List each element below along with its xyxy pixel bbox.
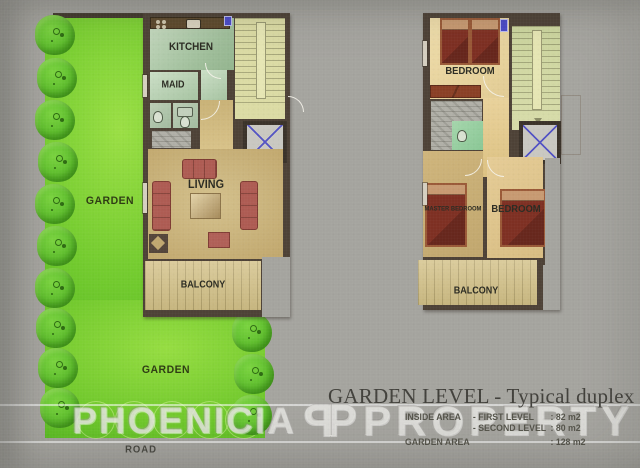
garden-label-lower: GARDEN	[142, 364, 190, 376]
area-level: - SECOND LEVEL	[473, 423, 551, 434]
watermark-word: PHOENICIA	[72, 400, 296, 442]
area-level: - FIRST LEVEL	[473, 412, 551, 423]
adjacent-unit-outline	[561, 95, 581, 155]
garden-label-upper: GARDEN	[86, 195, 134, 207]
door-arc-icon	[288, 96, 304, 112]
stove-icon	[156, 20, 160, 24]
balcony-label: BALCONY	[181, 280, 226, 291]
vent-icon	[224, 16, 232, 26]
bathroom-1	[150, 103, 171, 128]
sofa-icon	[240, 181, 258, 230]
area-row: GARDEN AREA : 128 m2	[405, 437, 630, 448]
first-level-plan: KITCHEN MAID LIVING BALCONY	[143, 13, 290, 317]
balcony-second	[418, 260, 537, 305]
tree-icon	[37, 58, 77, 98]
bathroom	[452, 121, 483, 150]
vent-icon	[500, 19, 508, 32]
area-value: : 80 m2	[551, 423, 631, 434]
road-label: ROAD	[125, 445, 157, 456]
tree-icon	[38, 348, 78, 388]
area-label: INSIDE AREA	[405, 412, 473, 423]
tree-icon	[35, 268, 75, 308]
plan-cutout	[543, 265, 560, 310]
second-level-plan: BEDROOM MASTER BEDROOM BEDROOM BALCONY	[423, 13, 560, 310]
boundary-wall	[53, 13, 150, 18]
area-value: : 128 m2	[551, 437, 631, 448]
tree-icon	[234, 354, 274, 394]
kitchen-counter	[150, 17, 230, 29]
toilet-icon	[153, 111, 163, 123]
bedroom-label: BEDROOM	[491, 203, 540, 215]
tree-icon	[232, 312, 272, 352]
area-label: GARDEN AREA	[405, 437, 473, 448]
toilet-icon	[180, 116, 190, 128]
sink-icon	[186, 19, 201, 29]
bathroom-2	[173, 103, 198, 128]
toilet-icon	[457, 130, 467, 142]
kitchen-label: KITCHEN	[169, 41, 213, 53]
staircase	[512, 26, 560, 130]
balcony-label: BALCONY	[454, 286, 499, 297]
tree-icon	[35, 184, 75, 224]
area-label	[405, 423, 473, 434]
floor-plan-sheet: GARDEN GARDEN ROAD	[0, 0, 640, 468]
tree-icon	[35, 15, 75, 55]
area-row: - SECOND LEVEL : 80 m2	[405, 423, 630, 434]
tree-icon	[38, 142, 78, 182]
sofa-icon	[152, 181, 171, 231]
maid-label: MAID	[161, 80, 184, 91]
sofa-icon	[182, 159, 217, 179]
living-room	[148, 149, 283, 259]
bed-icon	[470, 18, 500, 65]
page-title: GARDEN LEVEL - Typical duplex	[328, 384, 640, 409]
window	[143, 183, 147, 213]
side-table-icon	[208, 232, 230, 248]
fireplace-icon	[149, 234, 168, 253]
window	[143, 75, 147, 97]
tree-icon	[37, 226, 77, 266]
window	[423, 183, 427, 205]
bed-icon	[440, 18, 470, 65]
tree-icon	[35, 100, 75, 140]
coffee-table-icon	[190, 193, 221, 219]
dresser-icon	[430, 85, 481, 98]
tree-icon	[36, 308, 76, 348]
area-value: : 82 m2	[551, 412, 631, 423]
stair-stringer	[256, 22, 266, 99]
master-bedroom-label: MASTER BEDROOM	[425, 206, 482, 213]
living-label: LIVING	[188, 177, 224, 191]
plan-cutout	[262, 257, 290, 317]
staircase	[235, 18, 285, 119]
area-row: INSIDE AREA - FIRST LEVEL : 82 m2	[405, 412, 630, 423]
area-table: INSIDE AREA - FIRST LEVEL : 82 m2 - SECO…	[405, 412, 637, 448]
service-stair	[152, 131, 191, 148]
bed-icon	[425, 183, 467, 247]
window	[423, 41, 427, 66]
bed-icon	[500, 189, 546, 247]
stair-stringer	[532, 30, 542, 110]
area-level	[473, 437, 551, 448]
